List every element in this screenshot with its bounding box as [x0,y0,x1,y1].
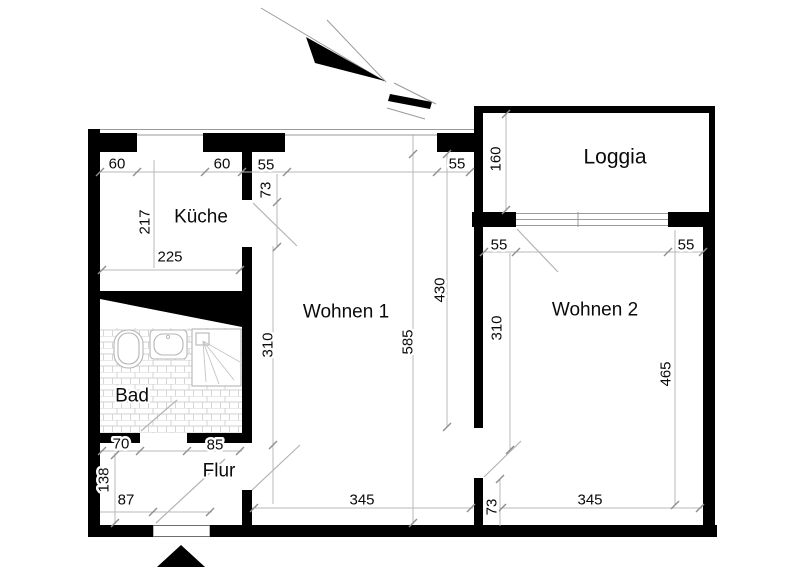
toilet-bowl-icon [118,333,139,364]
wall-kitchen-divider-top [242,152,252,200]
living1-door-swing [251,445,300,491]
north-arrow-line [261,8,384,81]
sink-basin-icon [154,334,183,355]
walls [88,106,717,537]
north-arrow-icon [261,8,436,119]
room-label-bath: Bad [115,386,149,407]
dim-label-kitchen-depth: 217 [137,209,154,234]
entrance-arrow-icon [157,545,205,567]
room-label-kitchen: Küche [174,207,228,228]
wall-wedge-kitchen-bath [100,291,242,327]
north-arrow-blade [306,37,385,81]
dim-label-w1-left: 310 [260,332,277,357]
dim-label-w2-top-right: 55 [678,237,695,254]
dim-label-w1-height: 585 [400,329,417,354]
dim-label-entrance-width: 87 [118,492,135,509]
dim-label-w1-right: 430 [432,277,449,302]
dim-label-flur-left: 138 [96,467,113,492]
living2-door-swing [484,441,521,477]
wall-loggia-right [709,106,715,212]
wall-loggia-bottom-right [668,212,709,227]
dim-label-bad-door: 70 [113,436,130,453]
entrance-door-leaf [153,526,210,537]
loggia-window [516,212,668,227]
north-arrow-tail [388,94,432,109]
floor-plan-canvas: Küche Bad Flur Wohnen 1 Wohnen 2 Loggia … [0,0,800,571]
room-label-hall: Flur [203,461,236,482]
dim-label-w1-door: 73 [258,182,275,199]
wall-right-exterior [703,212,715,537]
wall-divider-living [474,106,483,428]
room-label-loggia: Loggia [583,146,646,169]
wall-top-pier-left [88,133,137,152]
dim-label-top-pier-left: 60 [109,156,126,173]
kitchen-door-swing [253,203,297,246]
wall-top-pier-right [437,133,480,152]
wall-kitchen-divider-mid [242,247,252,443]
dim-label-loggia-depth: 160 [488,146,505,171]
floor-plan-drawing: Küche Bad Flur Wohnen 1 Wohnen 2 Loggia … [0,0,800,571]
dim-label-w1-bottom: 345 [349,492,374,509]
wall-kitchen-divider-bottom [242,490,252,530]
dim-label-w1-top-right: 55 [449,156,466,173]
wall-bottom-left [88,525,153,537]
room-label-living1: Wohnen 1 [303,302,389,323]
dim-label-w2-door: 73 [484,499,501,516]
dim-label-kitchen-width: 225 [157,249,182,266]
north-arrow-tail-line-lower [387,108,425,119]
dim-label-w2-bottom: 345 [577,492,602,509]
wall-top-pier-mid [203,133,285,152]
room-label-living2: Wohnen 2 [552,300,638,321]
wall-loggia-top [474,106,715,113]
dim-label-top-pier-mid: 60 [214,156,231,173]
dim-label-w2-top-left: 55 [491,237,508,254]
wall-bottom-right [210,525,717,537]
dim-label-bad-pier: 85 [207,437,224,454]
dim-label-w2-left: 310 [489,315,506,340]
dim-label-w2-right: 465 [658,361,675,386]
wall-divider-living-stub [474,478,483,530]
dim-label-w1-top-left: 55 [258,157,275,174]
loggia-door-swing [517,229,558,272]
